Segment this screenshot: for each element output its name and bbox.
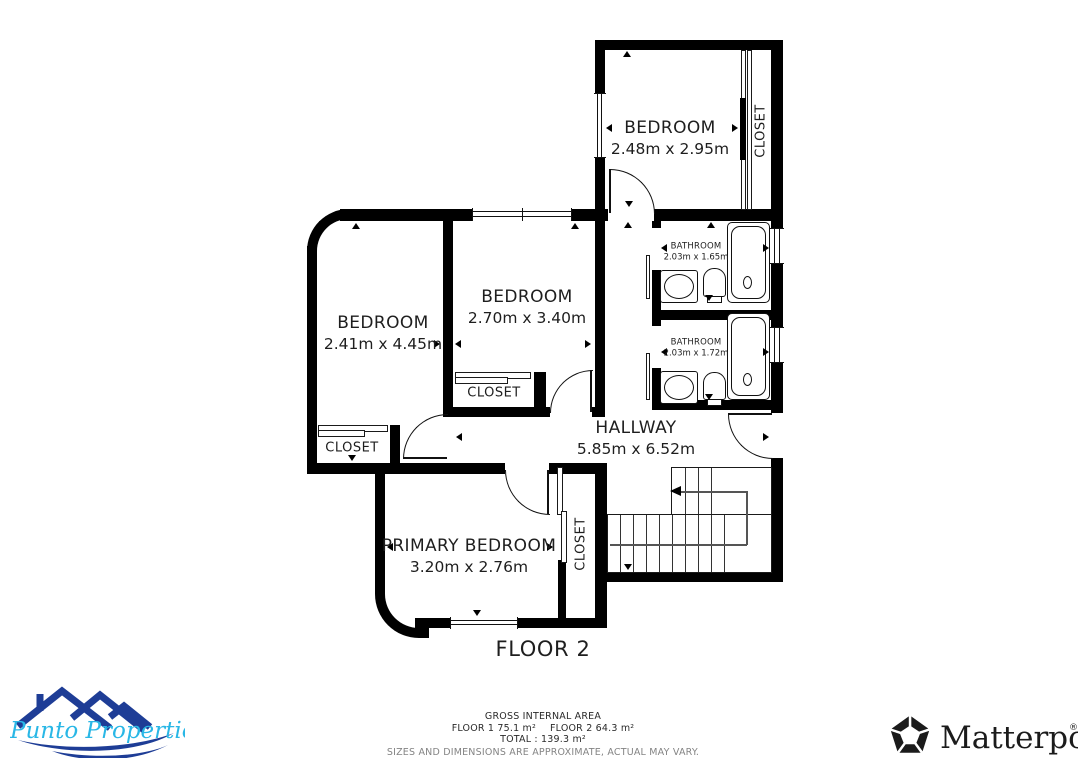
agency-logo: Punto Properties <box>10 680 185 758</box>
floor2-area: FLOOR 2 64.3 m² <box>550 723 634 735</box>
stairs-guide-line-lower <box>610 544 747 546</box>
closet-label-left-bedroom: CLOSET <box>325 441 379 456</box>
sliding-door-top-closet-panel <box>740 98 746 160</box>
room-dimensions: 2.03m x 1.65m <box>664 253 729 263</box>
dim-marker-top-bedroom-down <box>625 201 633 207</box>
dim-marker-bath2-right <box>763 348 769 356</box>
floorplan-page: BEDROOM 2.48m x 2.95m CLOSET BATHROOM 2.… <box>0 0 1086 768</box>
dim-marker-top-bedroom-up <box>623 51 631 57</box>
room-label-left-bedroom: BEDROOM 2.41m x 4.45m <box>324 313 442 353</box>
dim-marker-top-bedroom-right <box>732 124 738 132</box>
stairs-guide-line-upper <box>680 491 747 493</box>
room-name: PRIMARY BEDROOM <box>382 536 557 556</box>
sliding-door-primary-closet-a <box>557 467 563 515</box>
wall-mid-bedroom-right <box>595 209 605 417</box>
room-dimensions: 2.70m x 3.40m <box>468 309 586 327</box>
dim-marker-bath2-down <box>705 394 713 400</box>
provider-name-text: Matterport <box>940 720 1078 756</box>
dim-marker-hallway-right <box>763 433 769 441</box>
room-label-hallway: HALLWAY 5.85m x 6.52m <box>577 418 695 458</box>
room-dimensions: 2.48m x 2.95m <box>611 140 729 158</box>
room-dimensions: 3.20m x 2.76m <box>382 558 557 576</box>
wall-stairs-bottom <box>597 572 783 582</box>
room-label-mid-bedroom: BEDROOM 2.70m x 3.40m <box>468 287 586 327</box>
dim-marker-mid-bedroom-left <box>455 340 461 348</box>
sliding-door-left-closet-b <box>318 430 365 437</box>
door-leaf-mid-bedroom <box>590 370 592 412</box>
dim-marker-left-bedroom-left <box>308 340 314 348</box>
door-arc-left-bedroom <box>403 414 448 459</box>
toilet-2-base <box>707 399 722 406</box>
dim-marker-hallway-left <box>456 433 462 441</box>
dim-marker-bath2-up <box>707 313 715 319</box>
dim-marker-hallway-down <box>624 564 632 570</box>
agency-name-text: Punto Properties <box>10 718 185 744</box>
toilet-1 <box>703 268 726 297</box>
sink-1-basin <box>664 274 694 299</box>
window-primary-bottom <box>450 617 518 629</box>
dim-marker-left-bedroom-up <box>352 223 360 229</box>
sliding-door-mid-closet-b <box>455 377 508 384</box>
dim-marker-hallway-up <box>624 222 632 228</box>
window-top-bedroom-left <box>594 93 606 158</box>
door-leaf-primary-bedroom <box>547 470 549 514</box>
sink-2-basin <box>664 375 694 400</box>
door-arc-top-bedroom <box>610 169 655 214</box>
door-leaf-left-bedroom <box>403 457 447 459</box>
sliding-door-primary-closet-b <box>561 511 567 563</box>
wall-left-closet-right <box>390 425 400 473</box>
dim-marker-left-closet-down <box>348 455 356 461</box>
room-name: BEDROOM <box>611 118 729 138</box>
doorway-bath1 <box>652 228 661 270</box>
door-leaf-bath2 <box>646 353 650 400</box>
wall-left-exterior <box>307 246 317 473</box>
room-name: BEDROOM <box>468 287 586 307</box>
wall-mid-closet-right <box>534 372 546 412</box>
provider-logo-graphic: Matterport ® <box>886 708 1078 762</box>
room-label-top-bedroom: BEDROOM 2.48m x 2.95m <box>611 118 729 158</box>
dim-marker-bath1-down <box>705 295 713 301</box>
mark-petal-5 <box>889 714 910 733</box>
room-name: BATHROOM <box>664 338 729 348</box>
room-name: BEDROOM <box>324 313 442 333</box>
window-mid-bedroom-top <box>472 208 572 221</box>
wall-rounded-corner-bottom-left <box>375 584 429 638</box>
bathtub-2-drain <box>743 373 752 386</box>
floor-title: FLOOR 2 <box>0 637 1086 661</box>
door-leaf-hallway-exterior <box>728 413 772 415</box>
wall-primary-closet-stub <box>558 560 566 618</box>
dim-marker-primary-down <box>473 610 481 616</box>
dim-marker-bath1-right <box>763 244 769 252</box>
door-arc-mid-bedroom <box>550 370 593 413</box>
stairs-direction-arrow <box>670 486 681 496</box>
dim-marker-primary-up <box>473 467 481 473</box>
room-label-primary-bedroom: PRIMARY BEDROOM 3.20m x 2.76m <box>382 536 557 576</box>
wall-bedroom-divider <box>443 209 453 417</box>
floor1-area: FLOOR 1 75.1 m² <box>452 723 536 735</box>
wall-top-bedroom-top <box>597 40 783 50</box>
window-bath2-right <box>770 327 784 363</box>
door-arc-primary-bedroom <box>505 470 550 515</box>
provider-registered-mark: ® <box>1069 723 1078 733</box>
closet-label-mid-bedroom: CLOSET <box>467 386 521 401</box>
dim-marker-bath1-up <box>707 222 715 228</box>
bathtub-1-drain <box>743 276 752 289</box>
room-label-bath1: BATHROOM 2.03m x 1.65m <box>664 242 729 263</box>
closet-label-primary-bedroom: CLOSET <box>574 517 589 571</box>
door-leaf-bath1 <box>646 255 650 299</box>
closet-label-top-bedroom: CLOSET <box>754 104 769 158</box>
sliding-door-top-closet-track2 <box>747 50 752 210</box>
room-name: HALLWAY <box>577 418 695 438</box>
dim-marker-mid-bedroom-right <box>585 340 591 348</box>
door-leaf-top-bedroom <box>609 169 611 213</box>
wall-primary-right <box>595 463 607 628</box>
doorway-bath2 <box>652 326 661 368</box>
provider-logo: Matterport ® <box>886 708 1078 762</box>
agency-logo-graphic: Punto Properties <box>10 680 185 758</box>
stairs-guide-line-vertical <box>746 491 748 545</box>
room-dimensions: 2.03m x 1.72m <box>664 349 729 359</box>
room-dimensions: 5.85m x 6.52m <box>577 440 695 458</box>
dim-marker-mid-bedroom-up <box>571 223 579 229</box>
room-name: BATHROOM <box>664 242 729 252</box>
room-label-bath2: BATHROOM 2.03m x 1.72m <box>664 338 729 359</box>
window-bath1-right <box>770 228 784 264</box>
room-dimensions: 2.41m x 4.45m <box>324 335 442 353</box>
